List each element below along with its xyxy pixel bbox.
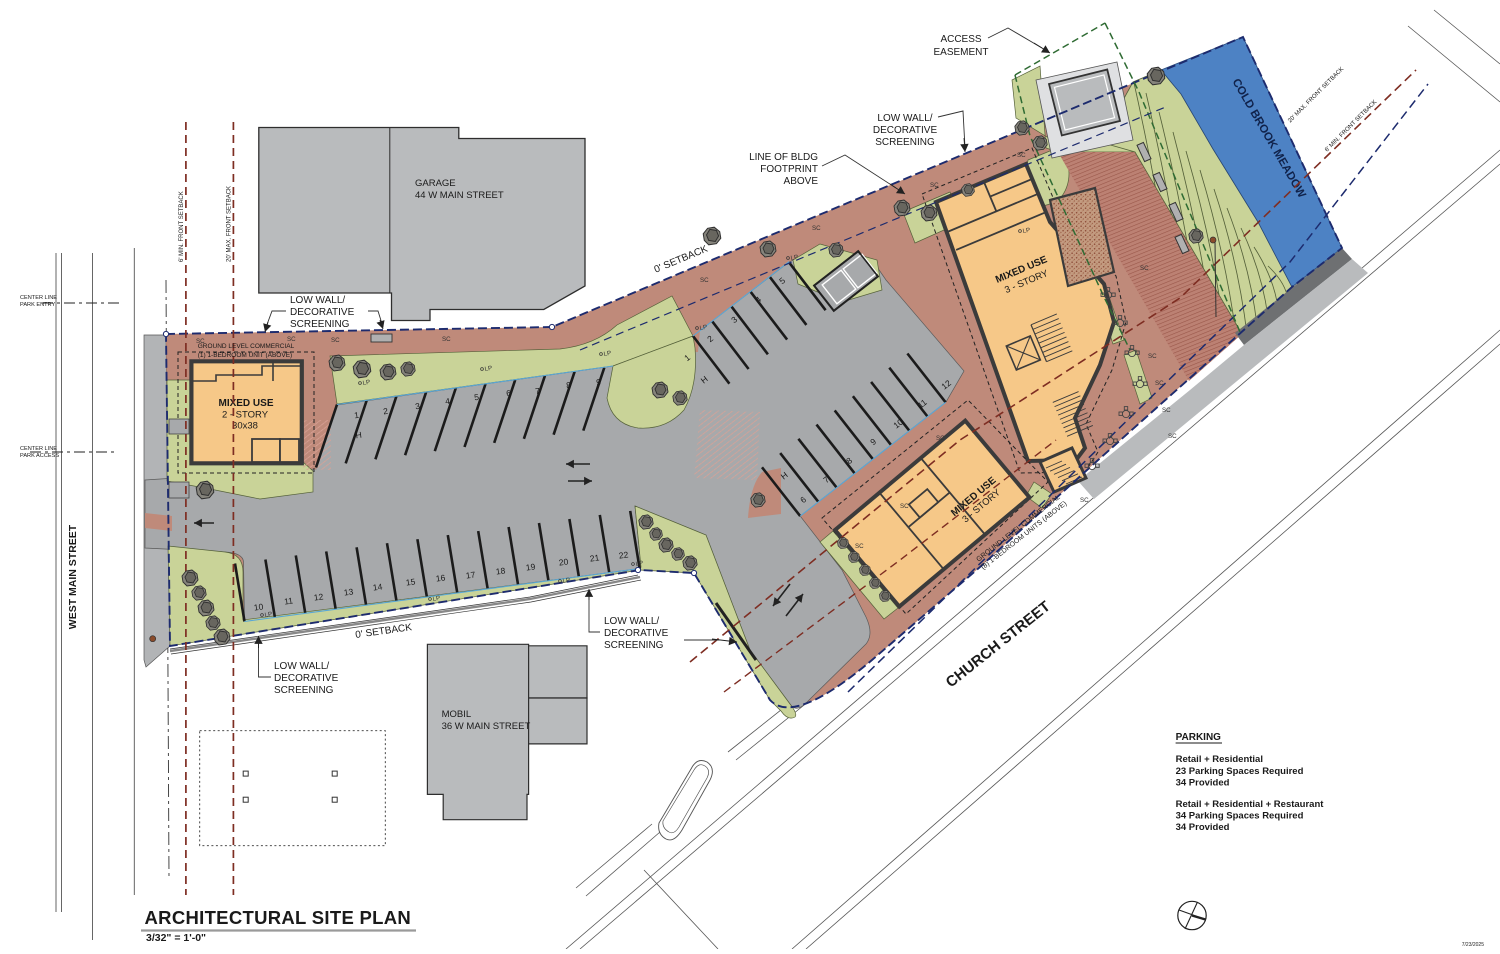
svg-text:11: 11 [284,595,294,606]
svg-text:14: 14 [372,581,383,592]
svg-text:30x38: 30x38 [232,421,258,432]
svg-text:(1) 1-BEDROOM UNIT (ABOVE): (1) 1-BEDROOM UNIT (ABOVE) [198,352,293,359]
svg-text:23 Parking Spaces Required: 23 Parking Spaces Required [1176,766,1304,777]
svg-text:CENTER LINE: CENTER LINE [20,446,57,452]
svg-text:LOW WALL/: LOW WALL/ [290,295,345,306]
svg-text:34 Provided: 34 Provided [1176,822,1230,833]
svg-text:GROUND LEVEL COMMERCIAL: GROUND LEVEL COMMERCIAL [198,343,295,350]
svg-text:SC: SC [930,182,939,189]
svg-text:SCREENING: SCREENING [290,319,350,330]
svg-text:LP: LP [432,595,441,603]
svg-text:SCREENING: SCREENING [274,685,334,696]
svg-text:WEST MAIN STREET: WEST MAIN STREET [67,524,79,629]
svg-text:LP: LP [362,379,371,387]
svg-text:7/23/2025: 7/23/2025 [1462,942,1484,948]
svg-text:13: 13 [343,586,354,597]
svg-text:SC: SC [331,337,340,344]
svg-text:LOW WALL/: LOW WALL/ [274,661,329,672]
svg-text:MOBIL: MOBIL [442,709,472,720]
svg-text:SC: SC [287,336,296,343]
svg-text:FOOTPRINT: FOOTPRINT [760,164,818,175]
svg-text:16: 16 [435,572,446,583]
svg-text:SC: SC [1017,152,1026,159]
svg-text:MIXED USE: MIXED USE [218,398,273,409]
svg-text:17: 17 [465,569,476,580]
svg-text:LP: LP [264,611,273,619]
svg-text:22: 22 [618,549,629,560]
svg-text:CENTER LINE: CENTER LINE [20,295,57,301]
svg-text:12: 12 [313,591,324,602]
svg-text:15: 15 [405,576,416,587]
svg-text:LP: LP [484,365,493,373]
svg-text:SC: SC [1155,380,1164,387]
svg-text:Retail + Residential + Restaur: Retail + Residential + Restaurant [1176,799,1325,810]
svg-text:DECORATIVE: DECORATIVE [274,673,339,684]
svg-text:LOW WALL/: LOW WALL/ [604,616,659,627]
svg-text:20' MAX. FRONT SETBACK: 20' MAX. FRONT SETBACK [227,186,233,262]
svg-text:SCREENING: SCREENING [875,137,935,148]
svg-text:SC: SC [1148,353,1157,360]
svg-text:LOW WALL/: LOW WALL/ [877,113,932,124]
svg-text:SC: SC [1080,497,1089,504]
svg-text:SC: SC [812,225,821,232]
svg-text:Retail + Residential: Retail + Residential [1176,754,1263,765]
svg-text:EASEMENT: EASEMENT [933,47,988,58]
svg-text:ARCHITECTURAL SITE PLAN: ARCHITECTURAL SITE PLAN [145,907,412,928]
svg-text:GARAGE: GARAGE [415,178,456,189]
svg-text:SC: SC [196,338,205,345]
svg-text:2 - STORY: 2 - STORY [222,410,269,421]
svg-text:DECORATIVE: DECORATIVE [290,307,355,318]
svg-text:SC: SC [1140,265,1149,272]
svg-text:DECORATIVE: DECORATIVE [873,125,938,136]
svg-text:SC: SC [442,336,451,343]
svg-text:18: 18 [495,565,506,576]
svg-text:6' MIN. FRONT SETBACK: 6' MIN. FRONT SETBACK [179,191,185,262]
svg-text:SC: SC [700,277,709,284]
svg-text:SC: SC [900,503,909,510]
svg-text:34 Parking Spaces Required: 34 Parking Spaces Required [1176,811,1304,822]
svg-text:34 Provided: 34 Provided [1176,778,1230,789]
svg-text:PARK ENTRY: PARK ENTRY [20,302,55,308]
svg-text:ACCESS: ACCESS [940,34,981,45]
svg-text:LP: LP [635,560,644,568]
svg-text:LP: LP [790,254,799,262]
svg-text:SCREENING: SCREENING [604,640,664,651]
svg-text:LINE OF BLDG: LINE OF BLDG [749,152,818,163]
svg-text:SC: SC [855,543,864,550]
svg-text:LP: LP [562,577,571,585]
svg-text:SC: SC [1162,407,1171,414]
svg-text:ABOVE: ABOVE [784,176,819,187]
svg-text:10: 10 [253,601,264,612]
svg-text:SC: SC [936,435,945,442]
svg-text:21: 21 [589,552,600,563]
svg-text:LP: LP [603,350,612,358]
svg-text:SC: SC [1168,433,1177,440]
svg-text:3/32" = 1'-0": 3/32" = 1'-0" [146,932,206,944]
svg-text:LP: LP [1022,227,1031,235]
svg-text:DECORATIVE: DECORATIVE [604,628,669,639]
svg-text:36 W MAIN STREET: 36 W MAIN STREET [442,721,531,732]
svg-text:LP: LP [699,324,708,332]
svg-text:PARKING: PARKING [1176,732,1222,743]
svg-text:19: 19 [525,561,536,572]
svg-text:PARK ACCESS: PARK ACCESS [20,453,59,459]
svg-text:44 W MAIN STREET: 44 W MAIN STREET [415,190,504,201]
svg-text:20: 20 [558,556,569,567]
